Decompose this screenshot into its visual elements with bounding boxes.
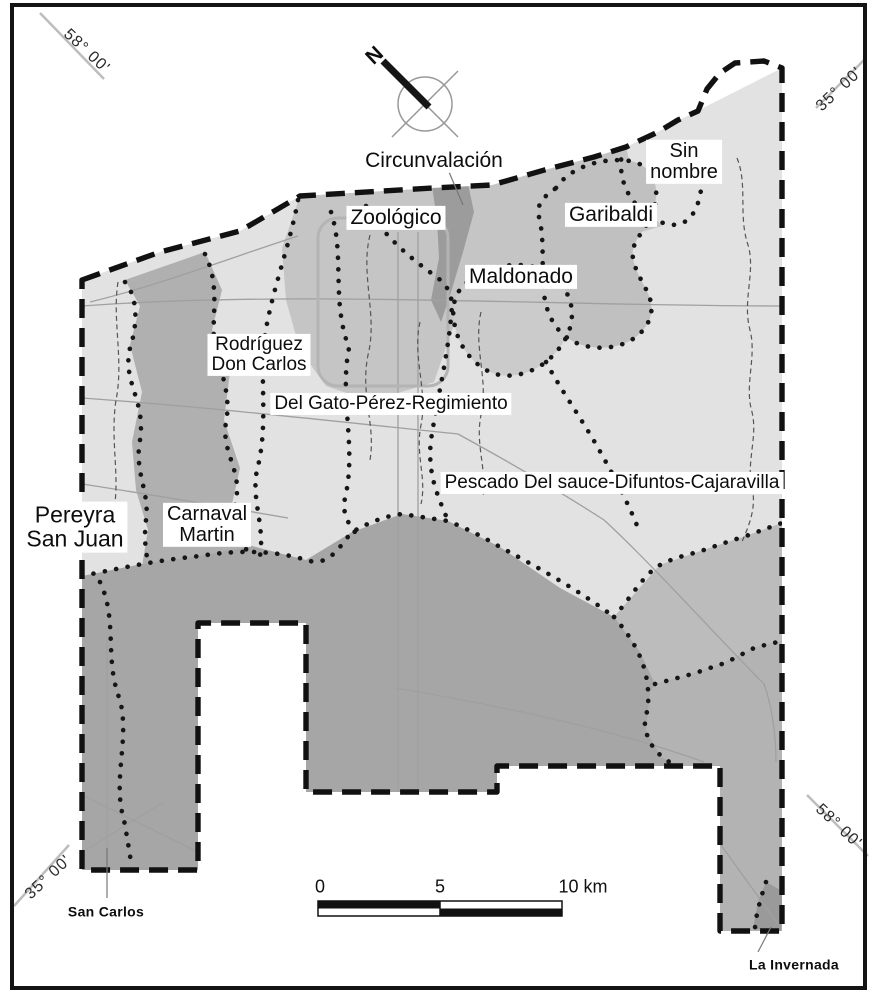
figure-frame	[10, 3, 867, 990]
map-figure: 58° 00' 35° 00' 35° 00' 58° 00' N Circun…	[0, 0, 880, 1000]
